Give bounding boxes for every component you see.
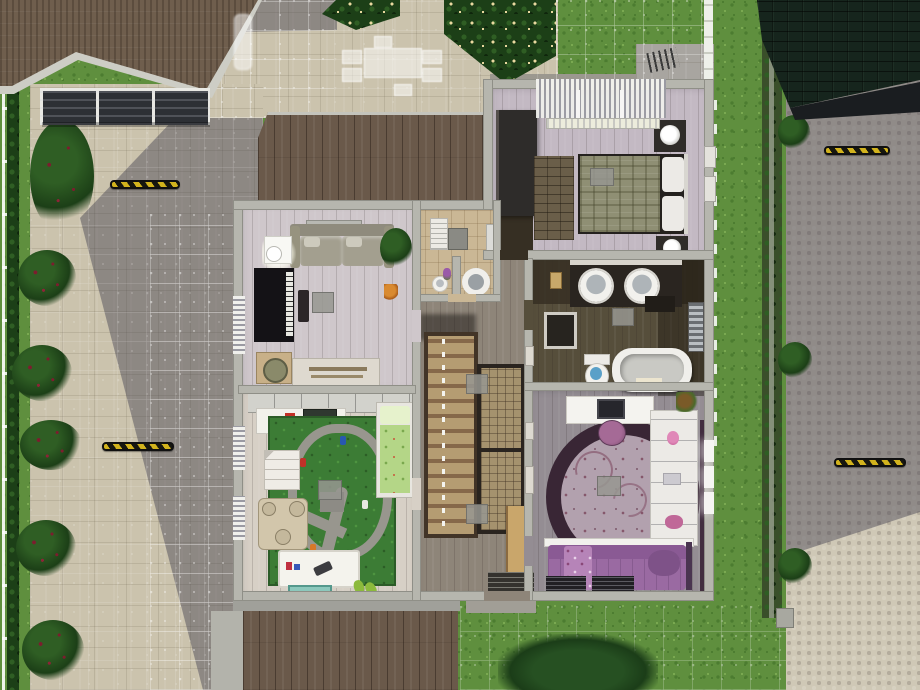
fence-end-post [776, 608, 794, 628]
ghost-chair [374, 36, 392, 48]
potted-plant[interactable] [380, 228, 412, 268]
sideboard[interactable] [292, 358, 380, 386]
wall-top-left [233, 200, 501, 210]
master-radiator[interactable] [546, 118, 660, 129]
wall-cabinet-dark[interactable] [645, 296, 675, 312]
carport-shadow [42, 122, 210, 127]
wc-radiator[interactable] [430, 218, 448, 250]
curb-marker[interactable] [110, 180, 180, 189]
curb-marker[interactable] [834, 458, 906, 467]
bottom-wall-apron [233, 601, 460, 611]
ceiling-light[interactable] [466, 374, 488, 394]
castle-tower [275, 529, 291, 545]
garage-corner-wall [211, 611, 243, 690]
teen-window[interactable] [704, 492, 714, 514]
master-bed[interactable] [578, 154, 688, 234]
kids-window[interactable] [233, 496, 245, 540]
dollhouse[interactable] [264, 450, 300, 490]
castle-tower [262, 502, 276, 516]
hedge-bush[interactable] [778, 548, 812, 584]
door-wc[interactable] [448, 294, 476, 302]
wardrobe[interactable] [496, 110, 537, 216]
window-mullion [576, 90, 580, 118]
rose-bush[interactable] [18, 250, 76, 306]
piano-bench[interactable] [298, 290, 309, 322]
ghost-dining-set [338, 36, 442, 94]
toy-car[interactable] [300, 458, 306, 467]
build-grid-grass-tr [556, 0, 704, 84]
ghost-chair [422, 50, 442, 64]
ceiling-light[interactable] [590, 168, 614, 186]
basket-table[interactable] [256, 352, 292, 384]
vanity-stool[interactable] [598, 420, 626, 446]
sideboard-tray [309, 367, 367, 371]
sofa-back [290, 224, 394, 236]
wc-divider-wall [452, 256, 461, 298]
ghost-chair [342, 50, 362, 64]
carport-pergola[interactable] [40, 88, 210, 125]
toybox-toy [286, 562, 292, 570]
master-rug[interactable] [534, 156, 574, 240]
sofa[interactable] [290, 224, 394, 270]
pink-vase [667, 431, 679, 445]
lower-roof-bottom [243, 611, 458, 690]
door-kids[interactable] [412, 478, 421, 510]
lower-roof-left [258, 112, 490, 205]
kids-window[interactable] [233, 426, 245, 470]
bed-headboard [684, 154, 688, 234]
master-window[interactable] [536, 79, 666, 90]
curb-marker[interactable] [102, 442, 174, 451]
wc-cabinet[interactable] [448, 228, 468, 250]
floor-lamp[interactable] [262, 236, 296, 268]
kids-blanket [380, 425, 410, 493]
rose-bush[interactable] [30, 120, 94, 232]
toilet-lid [590, 367, 602, 380]
wall-living-hall [412, 200, 421, 601]
computer-monitor[interactable] [597, 399, 625, 419]
master-wall-frame[interactable] [704, 176, 716, 202]
kids-pillow [380, 406, 410, 424]
wall-bottom [233, 591, 714, 601]
teen-dressers[interactable] [650, 410, 698, 546]
stair-rail-dashes [442, 336, 445, 526]
castle-tower [289, 501, 305, 517]
wall-master-left [483, 79, 493, 210]
rose-bush[interactable] [22, 620, 84, 680]
lamp-bulb [266, 246, 282, 262]
console-table[interactable] [506, 506, 524, 574]
game-viewport [0, 0, 920, 690]
hedge-wall-cap [769, 0, 774, 618]
toy-car[interactable] [362, 500, 368, 509]
wall-left [233, 200, 243, 601]
bed-post [686, 542, 692, 590]
sofa-pillow [346, 237, 362, 247]
ghost-chair [394, 84, 412, 96]
hall-wall-frame[interactable] [525, 422, 534, 440]
hall-wall-frame[interactable] [525, 466, 534, 494]
door-master[interactable] [500, 250, 528, 260]
hall-wall-frame[interactable] [525, 346, 534, 366]
kids-bed[interactable] [376, 402, 414, 498]
sideboard-tray [311, 375, 363, 378]
shower-hamper[interactable] [544, 312, 577, 349]
pet-toy[interactable] [384, 284, 398, 300]
teen-window[interactable] [704, 466, 714, 488]
toybox[interactable] [278, 550, 360, 588]
ceiling-light[interactable] [597, 476, 621, 496]
rose-bush[interactable] [16, 520, 76, 576]
wall-bath-teen [524, 382, 714, 391]
big-bush-bottom[interactable] [498, 634, 658, 690]
right-fence-top [704, 0, 713, 84]
master-wall-frame[interactable] [704, 146, 716, 168]
bed-pillow [662, 196, 684, 231]
entry-stoop [466, 601, 536, 613]
ceiling-light[interactable] [612, 308, 634, 326]
toybox-toy [313, 561, 333, 577]
soap-decor[interactable] [550, 272, 562, 289]
curb-marker[interactable] [824, 146, 890, 155]
bed-pillow [662, 157, 684, 192]
toybox-toy [294, 564, 300, 570]
accessory [663, 473, 681, 485]
ceiling-light[interactable] [466, 504, 488, 524]
door-teen[interactable] [524, 536, 533, 566]
ceiling-light[interactable] [312, 292, 334, 313]
table-lamp [660, 125, 680, 145]
sofa-pillow [304, 237, 320, 247]
teen-window[interactable] [704, 440, 714, 462]
basket [263, 358, 288, 383]
piano-keys [286, 272, 293, 336]
master-window-blinds [536, 90, 666, 118]
rose-bush[interactable] [20, 420, 82, 470]
flower-vase[interactable] [443, 268, 451, 280]
ceiling-light[interactable] [318, 480, 342, 500]
door-living[interactable] [412, 310, 421, 342]
door-front[interactable] [484, 591, 530, 601]
pink-pouf [665, 515, 683, 529]
hedge-bush[interactable] [778, 115, 810, 149]
round-pillow [648, 550, 680, 576]
wall-living-kids [238, 385, 416, 394]
ghost-table [364, 48, 422, 78]
towel-radiator[interactable] [688, 302, 704, 352]
piano[interactable] [254, 268, 294, 342]
round-sink[interactable] [580, 270, 612, 302]
plant-topright[interactable] [676, 392, 698, 412]
hedge-bush[interactable] [778, 342, 812, 378]
door-bathroom[interactable] [524, 300, 533, 330]
living-window[interactable] [233, 296, 245, 354]
wc-toilet[interactable] [462, 268, 490, 296]
window-mullion [620, 90, 624, 118]
toy-castle[interactable] [258, 498, 308, 550]
toy-car[interactable] [340, 436, 346, 445]
ghost-wall-cut [234, 14, 252, 70]
ghost-chair [422, 68, 442, 82]
rose-bush[interactable] [12, 345, 72, 401]
ghost-chair [342, 68, 362, 82]
